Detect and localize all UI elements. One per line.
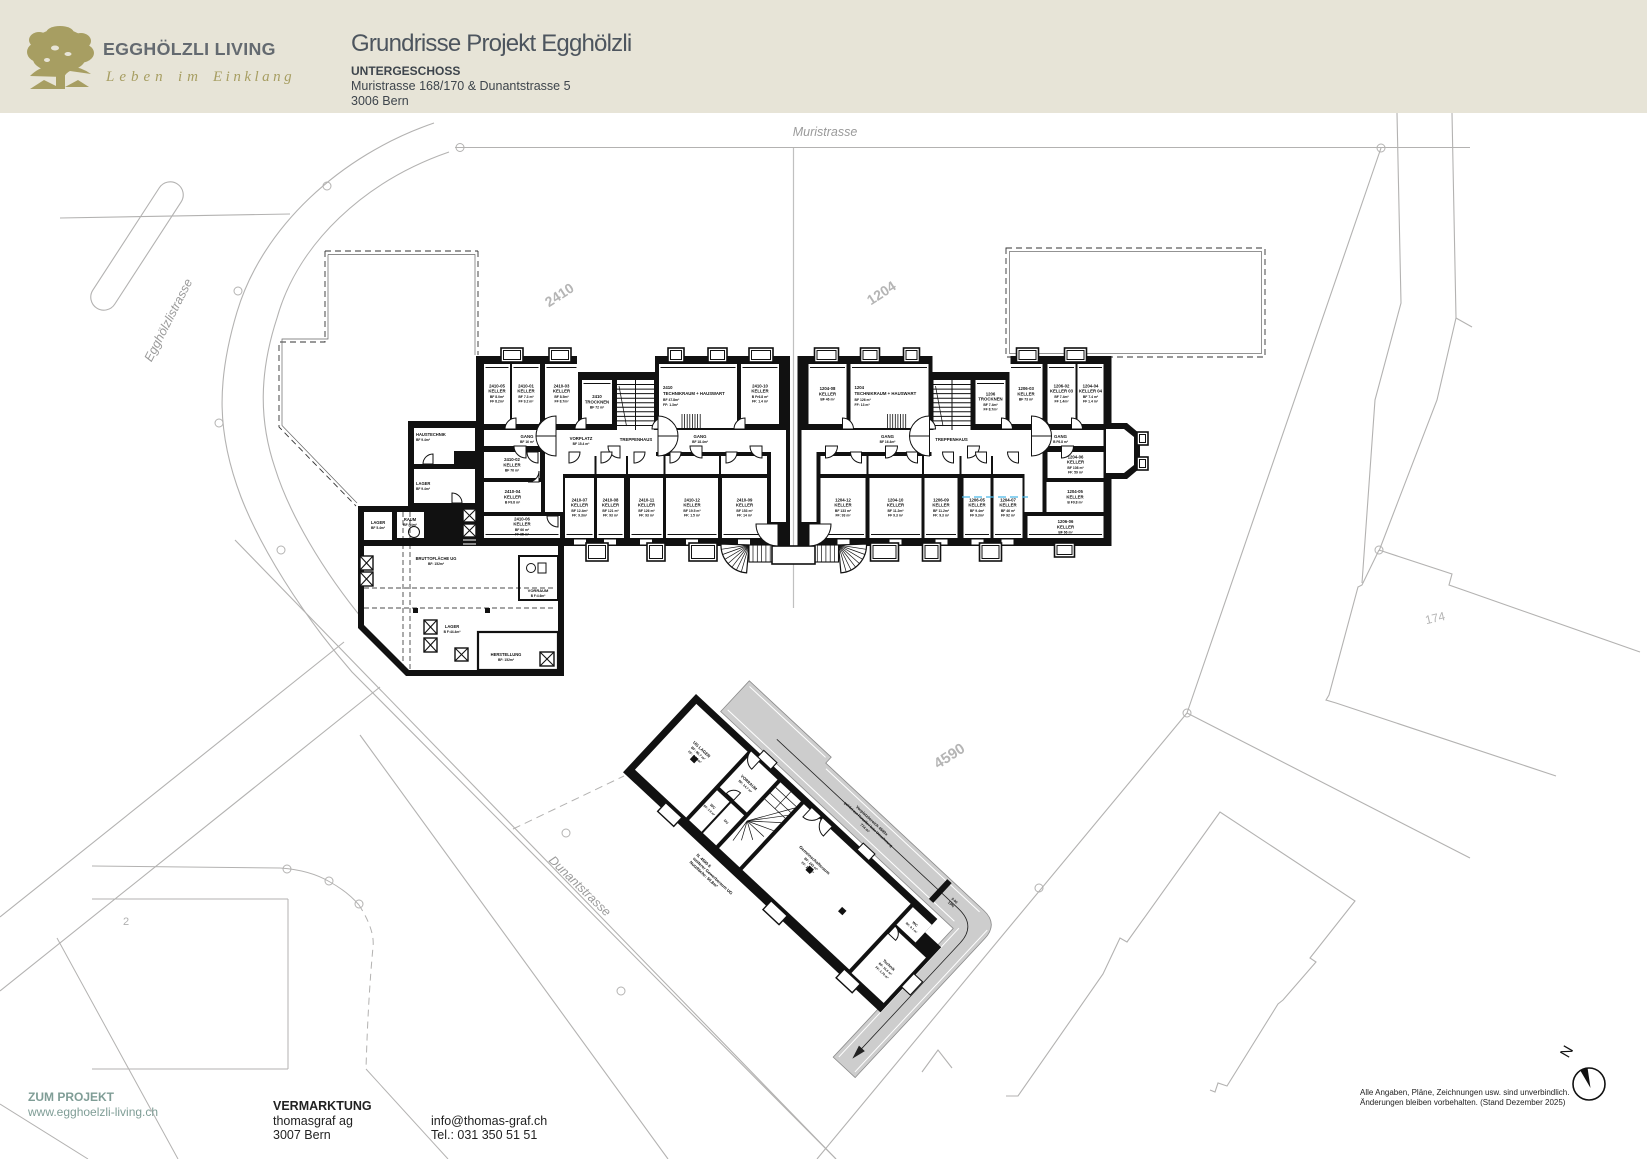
svg-text:BF: 152m²: BF: 152m² [498,658,515,662]
svg-text:BF 126 m²: BF 126 m² [855,398,872,402]
svg-text:BF 126 m²: BF 126 m² [638,509,655,513]
svg-text:3006 Bern: 3006 Bern [351,94,409,108]
svg-text:KELLER: KELLER [513,522,531,527]
svg-text:1206: 1206 [986,391,996,396]
svg-text:LAGER: LAGER [371,520,385,525]
svg-text:TREPPENHAUS: TREPPENHAUS [935,437,968,442]
svg-text:BF 16.4m²: BF 16.4m² [880,440,897,444]
svg-text:BF 11.2m²: BF 11.2m² [933,509,950,513]
svg-text:KELLER: KELLER [683,503,701,508]
svg-text:Einklang: Einklang [212,69,295,85]
svg-text:1204-10: 1204-10 [888,497,904,502]
svg-text:KELLER: KELLER [553,389,571,394]
svg-text:2410-07: 2410-07 [572,497,588,502]
svg-text:FF: 93 m²: FF: 93 m² [835,513,851,517]
svg-text:1204-04: 1204-04 [1083,383,1099,388]
svg-text:FF: 93 m²: FF: 93 m² [603,513,619,517]
svg-text:B F6.8 m²: B F6.8 m² [1053,440,1069,444]
svg-text:BF 46 m²: BF 46 m² [1001,509,1016,513]
svg-text:BF 66 m²: BF 66 m² [515,528,530,532]
svg-text:FF: 59 m²: FF: 59 m² [1068,470,1084,474]
svg-text:BF 66 m²: BF 66 m² [1058,531,1073,535]
svg-text:EGGHÖLZLI LIVING: EGGHÖLZLI LIVING [103,39,276,59]
svg-text:FF 8.2m²: FF 8.2m² [490,399,505,403]
svg-text:BF 18.4m²: BF 18.4m² [692,440,709,444]
svg-text:VERMARKTUNG: VERMARKTUNG [273,1099,372,1113]
svg-text:KELLER: KELLER [819,391,837,396]
svg-text:KELLER: KELLER [932,503,950,508]
svg-text:2410-03: 2410-03 [554,383,570,388]
svg-text:BF 7.4m²: BF 7.4m² [983,403,998,407]
svg-text:B F9.8 m²: B F9.8 m² [505,501,521,505]
svg-text:BF 73 m²: BF 73 m² [1019,398,1034,402]
svg-text:B F:44.4m²: B F:44.4m² [444,630,462,634]
svg-text:1206-02: 1206-02 [1054,383,1070,388]
svg-text:BF 133 m²: BF 133 m² [835,509,852,513]
svg-text:BF 19.5 m²: BF 19.5 m² [683,509,701,513]
svg-text:B F:4.6m²: B F:4.6m² [531,594,546,598]
svg-text:FF: 14 m²: FF: 14 m² [737,513,753,517]
svg-text:LAGER: LAGER [445,624,459,629]
svg-text:BF 8.5m²: BF 8.5m² [554,395,569,399]
svg-text:KELLER: KELLER [503,462,521,467]
svg-text:2: 2 [123,916,129,928]
svg-text:2410-10: 2410-10 [752,383,768,388]
svg-text:1204: 1204 [855,385,865,390]
svg-text:1204-06: 1204-06 [1068,454,1084,459]
svg-text:ZUM PROJEKT: ZUM PROJEKT [28,1090,115,1104]
svg-text:Muristrasse: Muristrasse [793,125,858,139]
svg-text:KELLER: KELLER [834,503,852,508]
svg-text:B Fr6.8 m²: B Fr6.8 m² [752,395,769,399]
svg-text:GANG: GANG [1054,434,1068,439]
svg-text:BF 153 m²: BF 153 m² [736,509,753,513]
svg-text:BF 12.4m²: BF 12.4m² [571,509,588,513]
svg-text:KELLER: KELLER [504,494,522,499]
svg-text:FF: 93 m²: FF: 93 m² [639,513,655,517]
svg-text:KELLER: KELLER [1066,494,1084,499]
svg-text:FF 8.7m²: FF 8.7m² [555,399,570,403]
svg-text:FF: 13 m²: FF: 13 m² [855,403,871,407]
svg-text:BF 9.4m²: BF 9.4m² [416,438,431,442]
svg-text:BF 16 m²: BF 16 m² [520,440,535,444]
svg-text:FF: 1.4 m²: FF: 1.4 m² [752,399,769,403]
svg-text:info@thomas-graf.ch: info@thomas-graf.ch [431,1114,547,1128]
svg-text:KELLER: KELLER [999,503,1017,508]
svg-text:FF 8.7m²: FF 8.7m² [984,407,999,411]
svg-text:2410-12: 2410-12 [684,497,700,502]
svg-text:KELLER: KELLER [517,389,535,394]
svg-text:KELLER 04: KELLER 04 [1079,389,1103,394]
svg-text:KELLER: KELLER [736,503,754,508]
svg-text:FF: 9.3 m²: FF: 9.3 m² [933,513,950,517]
svg-text:GANG: GANG [881,434,895,439]
svg-text:www.egghoelzli-living.ch: www.egghoelzli-living.ch [27,1105,158,1119]
svg-text:1206-05: 1206-05 [969,497,985,502]
svg-text:1206-03: 1206-03 [1018,386,1034,391]
svg-text:BF 11.2m²: BF 11.2m² [887,509,904,513]
svg-text:thomasgraf ag: thomasgraf ag [273,1114,353,1128]
svg-text:Tel.: 031 350 51 51: Tel.: 031 350 51 51 [431,1128,537,1142]
svg-text:1204-07: 1204-07 [1000,497,1016,502]
svg-text:KELLER: KELLER [571,503,589,508]
svg-text:TECHNIKRAUM + HAUSWART: TECHNIKRAUM + HAUSWART [855,391,917,396]
svg-text:2410-09: 2410-09 [737,497,753,502]
svg-text:2410-08: 2410-08 [603,497,619,502]
svg-text:KELLER: KELLER [638,503,656,508]
svg-text:2410-05: 2410-05 [489,383,505,388]
svg-text:BF 121 m²: BF 121 m² [602,509,619,513]
svg-text:BRUTTOFLÄCHE UG: BRUTTOFLÄCHE UG [416,556,457,561]
svg-text:BF 47.8m²: BF 47.8m² [663,398,680,402]
svg-text:BF 108 m²: BF 108 m² [1067,466,1084,470]
svg-text:KELLER 03: KELLER 03 [1050,389,1074,394]
svg-text:1206-06: 1206-06 [1058,519,1074,524]
svg-text:BF 15.4 m²: BF 15.4 m² [573,442,591,446]
svg-text:2410: 2410 [663,385,673,390]
svg-text:LAGER: LAGER [416,481,430,486]
svg-text:GANG: GANG [694,434,708,439]
svg-text:TROCKNEN: TROCKNEN [585,399,609,404]
svg-text:BF 46 m²: BF 46 m² [820,398,835,402]
svg-text:FF 9.3 m²: FF 9.3 m² [888,513,904,517]
svg-text:FF 92 m²: FF 92 m² [1001,513,1016,517]
svg-text:GANG: GANG [521,434,535,439]
svg-text:KELLER: KELLER [1067,460,1085,465]
svg-text:FF 1.4 m²: FF 1.4 m² [1083,399,1099,403]
svg-text:KELLER: KELLER [968,503,986,508]
svg-text:TREPPENHAUS: TREPPENHAUS [620,437,653,442]
svg-text:1204-12: 1204-12 [835,497,851,502]
svg-text:KELLER: KELLER [488,389,506,394]
svg-text:KELLER: KELLER [751,389,769,394]
svg-text:KELLER: KELLER [1017,391,1035,396]
svg-text:BF: 152m²: BF: 152m² [428,562,445,566]
svg-text:FF: 9.3m²: FF: 9.3m² [572,513,588,517]
svg-text:1204-08: 1204-08 [820,386,836,391]
svg-text:B F9.8 m²: B F9.8 m² [1067,501,1083,505]
svg-text:Änderungen bleiben vorbehalten: Änderungen bleiben vorbehalten. (Stand D… [1360,1098,1566,1107]
svg-text:BF 7.4m²: BF 7.4m² [1054,395,1069,399]
svg-text:2410-02: 2410-02 [504,457,520,462]
svg-text:FF 1.4m²: FF 1.4m² [1055,399,1070,403]
svg-text:KELLER: KELLER [602,503,620,508]
svg-text:FF 9.3m²: FF 9.3m² [970,513,985,517]
svg-text:BF 9.4m²: BF 9.4m² [416,487,431,491]
svg-text:HAUSTECHNIK: HAUSTECHNIK [416,432,446,437]
svg-text:Muristrasse 168/170 & Dunantst: Muristrasse 168/170 & Dunantstrasse 5 [351,79,571,93]
svg-text:FF 65 m²: FF 65 m² [515,532,530,536]
svg-text:BF 72 m²: BF 72 m² [590,406,605,410]
svg-text:BF 7.4 m²: BF 7.4 m² [1083,395,1099,399]
svg-text:VORPLATZ: VORPLATZ [570,436,593,441]
svg-text:BF 5.4m²: BF 5.4m² [371,526,386,530]
svg-text:1204-05: 1204-05 [1067,489,1083,494]
svg-text:Grundrisse Projekt Egghölzli: Grundrisse Projekt Egghölzli [351,30,631,57]
svg-text:Leben: Leben [105,69,168,85]
svg-text:VORRAUM: VORRAUM [528,588,549,593]
svg-text:2410: 2410 [592,394,602,399]
svg-text:KELLER: KELLER [1057,524,1075,529]
svg-text:FF: 1.5 m²: FF: 1.5 m² [684,513,701,517]
svg-text:3007 Bern: 3007 Bern [273,1128,331,1142]
svg-text:2410-06: 2410-06 [514,516,530,521]
svg-text:Alle Angaben, Pläne, Zeichnung: Alle Angaben, Pläne, Zeichnungen usw. si… [1360,1088,1569,1097]
svg-text:2410-01: 2410-01 [518,383,534,388]
svg-text:FF 9.2 m²: FF 9.2 m² [519,399,535,403]
svg-text:UNTERGESCHOSS: UNTERGESCHOSS [351,64,460,78]
svg-text:FF: 1.3m²: FF: 1.3m² [663,403,679,407]
svg-text:1206-09: 1206-09 [933,497,949,502]
svg-text:KELLER: KELLER [887,503,905,508]
svg-text:TECHNIKRAUM + HAUSWART: TECHNIKRAUM + HAUSWART [663,391,725,396]
svg-text:BF 8.0m²: BF 8.0m² [490,395,505,399]
svg-text:BF 9.4m²: BF 9.4m² [970,509,985,513]
svg-text:BF 7.3 m²: BF 7.3 m² [518,395,534,399]
svg-text:TROCKNEN: TROCKNEN [978,397,1002,402]
svg-text:HERSTELLUNG: HERSTELLUNG [491,652,522,657]
svg-text:2410-04: 2410-04 [505,489,521,494]
svg-text:2410-11: 2410-11 [639,497,655,502]
svg-text:im: im [178,69,203,85]
svg-text:BF 76 m²: BF 76 m² [505,469,520,473]
